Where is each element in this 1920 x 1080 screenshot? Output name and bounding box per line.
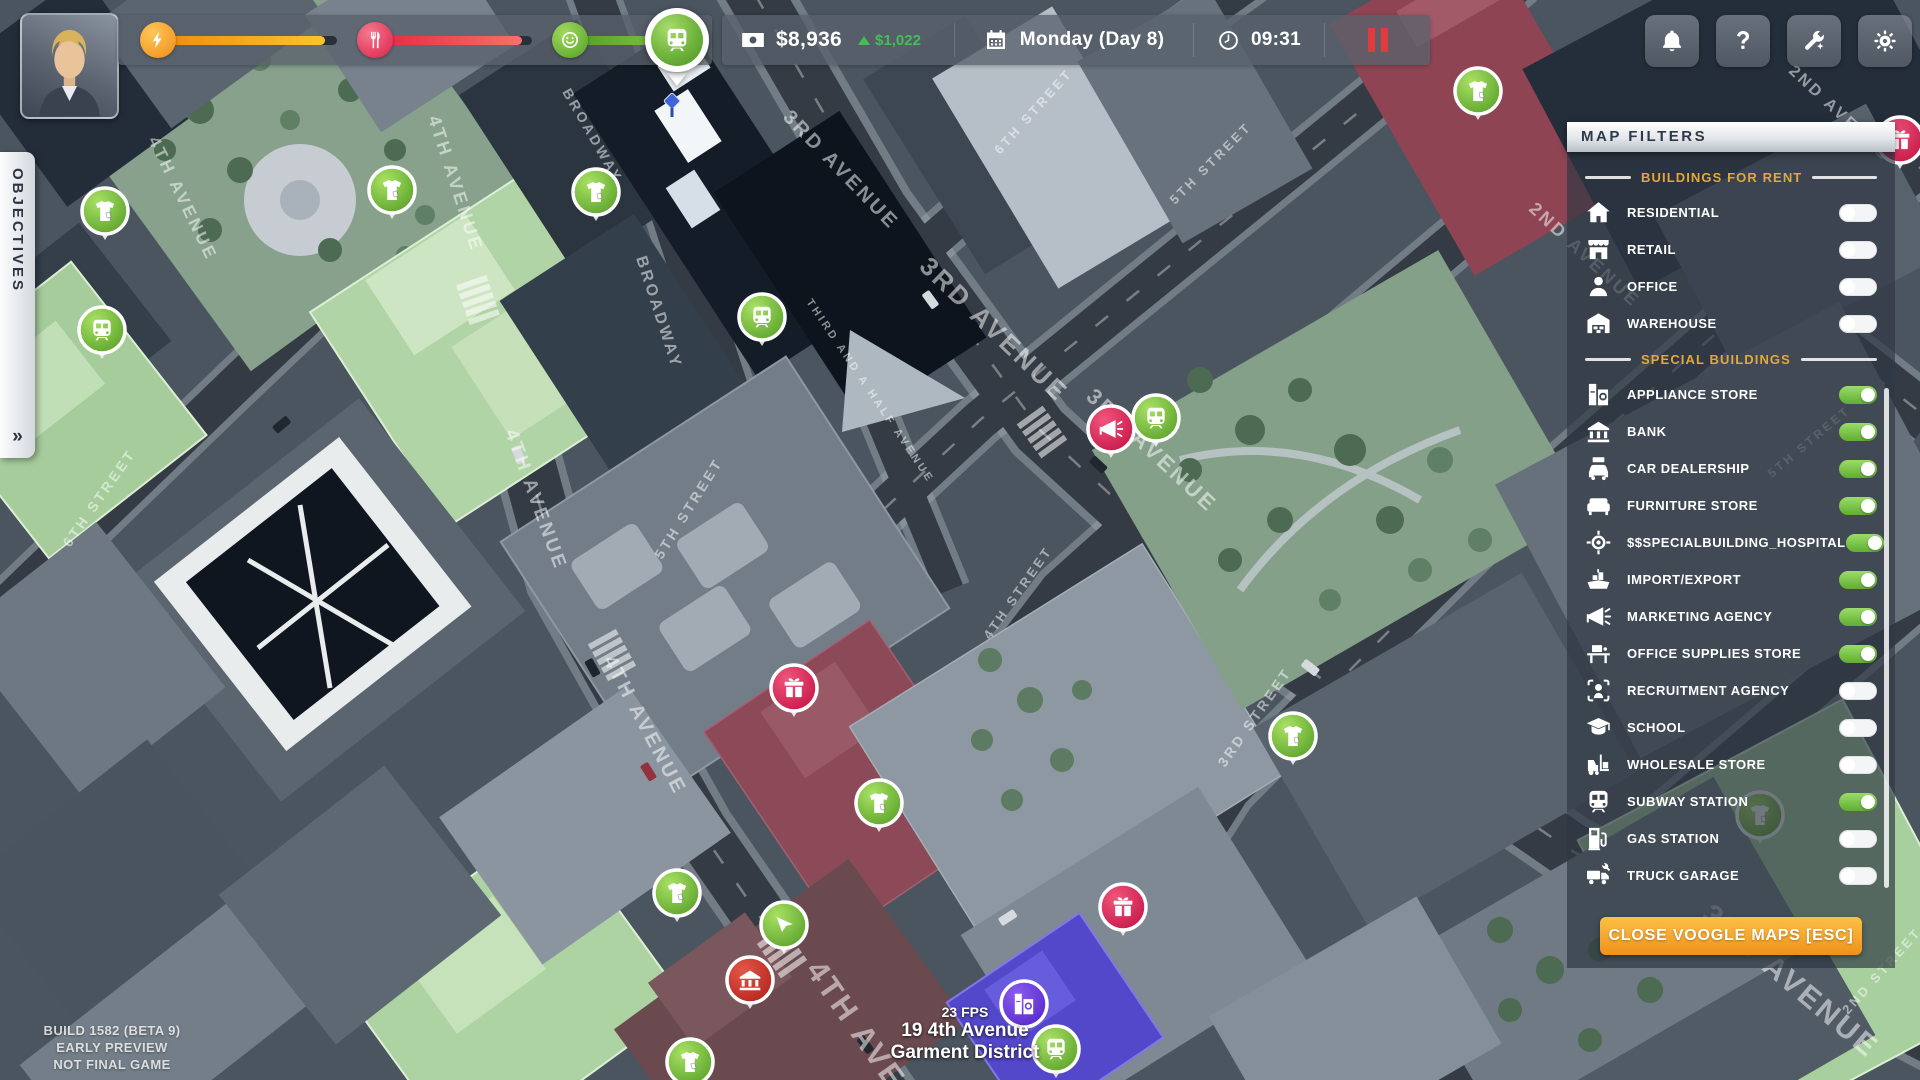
toggle-specialbuilding-hospital[interactable] (1846, 534, 1884, 552)
house-icon (1585, 199, 1612, 226)
question-icon (1730, 28, 1756, 54)
filter-label: $$SPECIALBUILDING_HOSPITAL (1627, 535, 1846, 550)
filter-label: WHOLESALE STORE (1627, 757, 1839, 772)
game-screen: 4TH AVENUE4TH AVENUE4TH AVENUE4TH AVENUE… (0, 0, 1920, 1080)
toggle-school[interactable] (1839, 719, 1877, 737)
graduation-cap-icon (1585, 714, 1612, 741)
address-text: 19 4th Avenue (858, 1020, 1072, 1042)
toggle-marketing-agency[interactable] (1839, 608, 1877, 626)
need-hunger (357, 22, 532, 58)
toggle-bank[interactable] (1839, 423, 1877, 441)
time-display: 09:31 (1194, 15, 1324, 65)
filter-label: IMPORT/EXPORT (1627, 572, 1839, 587)
filter-row-school: SCHOOL (1567, 709, 1895, 746)
section-header-special-buildings: SPECIAL BUILDINGS (1567, 342, 1895, 376)
calendar-icon (984, 28, 1008, 52)
up-arrow-icon (858, 36, 870, 45)
toggle-appliance-store[interactable] (1839, 386, 1877, 404)
need-bar-hunger (388, 36, 532, 45)
forklift-icon (1585, 751, 1612, 778)
toggle-subway-station[interactable] (1839, 793, 1877, 811)
close-voogle-maps-button[interactable]: CLOSE VOOGLE MAPS [ESC] (1600, 917, 1862, 955)
filter-label: APPLIANCE STORE (1627, 387, 1839, 402)
cargo-ship-icon (1585, 566, 1612, 593)
wrench-sparkle-icon (1801, 28, 1827, 54)
filter-label: OFFICE (1627, 279, 1839, 294)
toggle-office-supplies-store[interactable] (1839, 645, 1877, 663)
gear-icon (1872, 28, 1898, 54)
filter-label: WAREHOUSE (1627, 316, 1839, 331)
date-display: Monday (Day 8) (955, 15, 1193, 65)
desk-icon (1585, 640, 1612, 667)
money-display[interactable]: $8,936 $1,022 (722, 15, 954, 65)
toggle-retail[interactable] (1839, 241, 1877, 259)
panel-body: BUILDINGS FOR RENTRESIDENTIALRETAILOFFIC… (1567, 152, 1895, 968)
toggle-gas-station[interactable] (1839, 830, 1877, 848)
filters-scrollbar[interactable] (1884, 388, 1889, 888)
filter-label: RECRUITMENT AGENCY (1627, 683, 1839, 698)
shop-icon (1585, 236, 1612, 263)
need-energy (140, 22, 337, 58)
panel-title: MAP FILTERS (1567, 122, 1895, 152)
filter-label: RESIDENTIAL (1627, 205, 1839, 220)
filter-row-office: OFFICE (1567, 268, 1895, 305)
truck-wrench-icon (1585, 862, 1612, 889)
player-avatar[interactable] (20, 13, 119, 119)
filter-label: SCHOOL (1627, 720, 1839, 735)
filter-label: OFFICE SUPPLIES STORE (1627, 646, 1839, 661)
warehouse-icon (1585, 310, 1612, 337)
office-worker-icon (1585, 273, 1612, 300)
toggle-furniture-store[interactable] (1839, 497, 1877, 515)
help-button[interactable] (1716, 15, 1770, 67)
toggle-truck-garage[interactable] (1839, 867, 1877, 885)
toggle-import-export[interactable] (1839, 571, 1877, 589)
district-text: Garment District (858, 1042, 1072, 1064)
sofa-icon (1585, 492, 1612, 519)
filter-row-subway-station: SUBWAY STATION (1567, 783, 1895, 820)
clock-icon (1217, 29, 1240, 52)
megaphone-icon (1585, 603, 1612, 630)
pause-icon (1368, 28, 1375, 52)
car-sale-icon (1585, 455, 1612, 482)
filter-row-furniture-store: FURNITURE STORE (1567, 487, 1895, 524)
gas-pump-icon (1585, 825, 1612, 852)
filter-row-retail: RETAIL (1567, 231, 1895, 268)
money-change: $1,022 (858, 32, 921, 49)
subway-train-icon (1585, 788, 1612, 815)
objectives-tab[interactable]: OBJECTIVES » (0, 152, 35, 458)
build-watermark: BUILD 1582 (BETA 9) EARLY PREVIEW NOT FI… (22, 1022, 202, 1073)
expand-chevrons-icon: » (12, 426, 23, 448)
filter-row-wholesale-store: WHOLESALE STORE (1567, 746, 1895, 783)
bell-icon (1659, 28, 1685, 54)
objectives-label: OBJECTIVES (9, 168, 26, 293)
money-icon (740, 27, 766, 53)
section-header-buildings-for-rent: BUILDINGS FOR RENT (1567, 160, 1895, 194)
filter-label: TRUCK GARAGE (1627, 868, 1839, 883)
filter-label: SUBWAY STATION (1627, 794, 1839, 809)
filter-row-marketing-agency: MARKETING AGENCY (1567, 598, 1895, 635)
filter-row-recruitment-agency: RECRUITMENT AGENCY (1567, 672, 1895, 709)
filter-row-truck-garage: TRUCK GARAGE (1567, 857, 1895, 894)
filter-row-specialbuilding-hospital: $$SPECIALBUILDING_HOSPITAL (1567, 524, 1895, 561)
filter-row-bank: BANK (1567, 413, 1895, 450)
appliance-icon (1585, 381, 1612, 408)
filter-label: MARKETING AGENCY (1627, 609, 1839, 624)
filter-row-car-dealership: CAR DEALERSHIP (1567, 450, 1895, 487)
need-bar-energy (171, 36, 337, 45)
needs-bar (118, 15, 712, 65)
filter-row-residential: RESIDENTIAL (1567, 194, 1895, 231)
happiness-smiley-icon (552, 22, 588, 58)
transport-pointer (667, 73, 687, 86)
filter-label: RETAIL (1627, 242, 1839, 257)
recruit-target-icon (1585, 677, 1612, 704)
pause-button[interactable] (1325, 15, 1430, 65)
player-portrait (22, 15, 117, 117)
target-icon (1585, 529, 1612, 556)
map-filters-panel: MAP FILTERS BUILDINGS FOR RENTRESIDENTIA… (1567, 122, 1895, 968)
filter-row-appliance-store: APPLIANCE STORE (1567, 376, 1895, 413)
map-pin-clothing-store[interactable] (667, 1039, 713, 1080)
filter-label: GAS STATION (1627, 831, 1839, 846)
filter-label: FURNITURE STORE (1627, 498, 1839, 513)
filter-row-warehouse: WAREHOUSE (1567, 305, 1895, 342)
hunger-food-icon (357, 22, 393, 58)
toggle-warehouse[interactable] (1839, 315, 1877, 333)
toggle-recruitment-agency[interactable] (1839, 682, 1877, 700)
fps-counter: 23 FPS (858, 1004, 1072, 1020)
toggle-residential[interactable] (1839, 204, 1877, 222)
filter-row-gas-station: GAS STATION (1567, 820, 1895, 857)
bank-icon (1585, 418, 1612, 445)
date-text: Monday (Day 8) (1020, 29, 1165, 51)
filter-label: BANK (1627, 424, 1839, 439)
toggle-car-dealership[interactable] (1839, 460, 1877, 478)
money-balance: $8,936 (776, 28, 842, 52)
cheats-button[interactable] (1787, 15, 1841, 67)
toggle-office[interactable] (1839, 278, 1877, 296)
notifications-button[interactable] (1645, 15, 1699, 67)
filter-row-office-supplies-store: OFFICE SUPPLIES STORE (1567, 635, 1895, 672)
hud-info-bar: $8,936 $1,022 Monday (Day 8) 09:31 (722, 15, 1430, 65)
time-text: 09:31 (1251, 29, 1301, 51)
settings-button[interactable] (1858, 15, 1912, 67)
transport-mode-button[interactable] (645, 8, 709, 72)
filter-label: CAR DEALERSHIP (1627, 461, 1839, 476)
energy-lightning-icon (140, 22, 176, 58)
toggle-wholesale-store[interactable] (1839, 756, 1877, 774)
subway-train-icon (663, 26, 691, 54)
filter-row-import-export: IMPORT/EXPORT (1567, 561, 1895, 598)
location-display: 23 FPS 19 4th Avenue Garment District (858, 1004, 1072, 1064)
